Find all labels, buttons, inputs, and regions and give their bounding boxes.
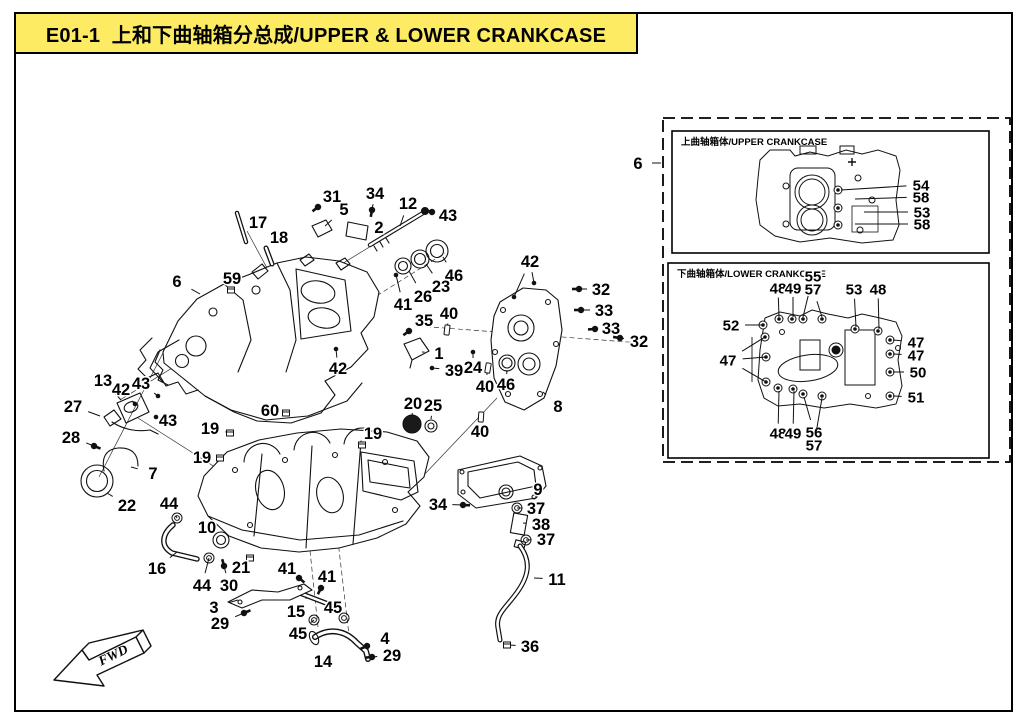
callout-33: 33 [588, 320, 620, 338]
inset-boxes [663, 118, 1010, 462]
oil-seal-art [81, 465, 113, 497]
page: E01-1 上和下曲轴箱分总成/UPPER & LOWER CRANKCASE [0, 0, 1027, 726]
callout-49: 49 [785, 391, 802, 442]
svg-text:44: 44 [160, 495, 179, 513]
callout-50: 50 [893, 364, 926, 381]
svg-text:30: 30 [220, 577, 238, 595]
callout-2: 2 [374, 219, 383, 237]
lower-inset-art [752, 310, 902, 408]
svg-text:58: 58 [914, 216, 931, 233]
svg-text:37: 37 [537, 531, 555, 549]
callout-52: 52 [723, 317, 763, 334]
svg-text:57: 57 [806, 437, 823, 454]
callout-28: 28 [62, 429, 101, 449]
svg-text:33: 33 [602, 320, 620, 338]
svg-text:9: 9 [533, 481, 542, 499]
callout-22: 22 [107, 493, 136, 515]
svg-text:5: 5 [339, 201, 348, 219]
callout-56: 56 [804, 397, 822, 441]
svg-text:42: 42 [329, 360, 347, 378]
bearing-rings-art [395, 240, 448, 274]
callout-24: 24 [464, 350, 483, 377]
callout-36: 36 [504, 638, 540, 656]
callout-25: 25 [424, 397, 442, 419]
svg-text:6: 6 [172, 273, 181, 291]
callout-26: 26 [409, 271, 432, 306]
svg-text:43: 43 [439, 207, 457, 225]
svg-text:48: 48 [870, 281, 887, 298]
svg-text:13: 13 [94, 372, 112, 390]
upper-inset-box [672, 131, 989, 253]
callout-17: 17 [249, 214, 267, 232]
svg-text:45: 45 [289, 625, 307, 643]
callout-21: 21 [232, 555, 254, 577]
callout-43: 43 [425, 207, 457, 225]
svg-text:43: 43 [132, 375, 150, 393]
callout-41: 41 [394, 273, 412, 314]
callout-35: 35 [403, 312, 433, 335]
svg-text:50: 50 [910, 364, 927, 381]
callout-32: 32 [572, 281, 610, 299]
svg-text:34: 34 [429, 496, 448, 514]
svg-text:43: 43 [159, 412, 177, 430]
svg-text:18: 18 [270, 229, 288, 247]
callout-8: 8 [543, 392, 563, 416]
svg-text:40: 40 [440, 305, 458, 323]
svg-text:8: 8 [553, 398, 562, 416]
svg-text:16: 16 [148, 560, 166, 578]
svg-text:19: 19 [193, 449, 211, 467]
svg-text:41: 41 [278, 560, 296, 578]
svg-text:53: 53 [846, 281, 863, 298]
callout-58: 58 [855, 216, 930, 233]
callout-6: 6 [633, 155, 661, 173]
svg-text:33: 33 [595, 302, 613, 320]
svg-text:27: 27 [64, 398, 82, 416]
callout-39: 39 [430, 362, 463, 380]
callout-40: 40 [471, 412, 489, 441]
callout-27: 27 [64, 398, 100, 416]
svg-text:28: 28 [62, 429, 80, 447]
svg-text:23: 23 [432, 278, 450, 296]
exploded-diagram: 上曲轴箱体/UPPER CRANKCASE 下曲轴箱体/LOWER CRANKC… [0, 0, 1027, 726]
callout-16: 16 [148, 552, 177, 578]
svg-text:51: 51 [908, 389, 925, 406]
svg-text:19: 19 [364, 425, 382, 443]
lower-inset-box [668, 263, 989, 458]
svg-text:34: 34 [366, 185, 385, 203]
svg-text:42: 42 [112, 381, 130, 399]
callout-9: 9 [533, 481, 542, 499]
upper-inset-callouts: 54585358 [841, 177, 930, 233]
svg-text:2: 2 [374, 219, 383, 237]
svg-text:25: 25 [424, 397, 442, 415]
svg-text:39: 39 [445, 362, 463, 380]
callout-37: 37 [521, 531, 555, 549]
svg-text:60: 60 [261, 402, 279, 420]
svg-text:17: 17 [249, 214, 267, 232]
svg-text:40: 40 [476, 378, 494, 396]
svg-text:32: 32 [630, 333, 648, 351]
svg-text:36: 36 [521, 638, 539, 656]
svg-text:41: 41 [318, 568, 336, 586]
oil-pipe-art [498, 546, 528, 640]
svg-text:46: 46 [497, 376, 515, 394]
svg-text:1: 1 [434, 345, 443, 363]
svg-text:47: 47 [720, 352, 737, 369]
svg-text:12: 12 [399, 195, 417, 213]
callout-31: 31 [312, 188, 341, 211]
callout-32: 32 [613, 333, 648, 351]
callout-40: 40 [440, 305, 458, 335]
svg-text:49: 49 [785, 425, 802, 442]
callout-14: 14 [314, 653, 333, 671]
inset-dashed-box [663, 118, 1010, 462]
svg-text:14: 14 [314, 653, 333, 671]
svg-text:47: 47 [908, 347, 925, 364]
svg-text:21: 21 [232, 559, 250, 577]
svg-text:52: 52 [723, 317, 740, 334]
callout-29: 29 [365, 647, 401, 665]
svg-text:22: 22 [118, 497, 136, 515]
diagram-art [81, 208, 562, 660]
svg-text:57: 57 [805, 281, 822, 298]
breather-pipe-art [164, 525, 197, 559]
lower-inset-callouts: 52474849555753484747505148495657 [720, 268, 927, 454]
svg-text:7: 7 [148, 465, 157, 483]
fwd-arrow: FWD [54, 630, 151, 686]
svg-text:45: 45 [324, 599, 342, 617]
svg-text:20: 20 [404, 395, 422, 413]
callout-34: 34 [366, 185, 385, 217]
callout-48: 48 [870, 281, 887, 329]
svg-text:59: 59 [223, 270, 241, 288]
callout-20: 20 [404, 395, 422, 417]
callout-47: 47 [893, 347, 924, 364]
svg-text:29: 29 [211, 615, 229, 633]
svg-text:24: 24 [464, 359, 483, 377]
upper-inset-art [756, 146, 900, 243]
callout-6: 6 [172, 273, 200, 294]
svg-text:35: 35 [415, 312, 433, 330]
svg-text:10: 10 [198, 519, 216, 537]
lower-inset-label: 下曲轴箱体/LOWER CRANKCASE [677, 268, 826, 280]
callout-53: 53 [846, 281, 863, 327]
callout-7: 7 [131, 465, 158, 483]
callout-19: 19 [201, 420, 234, 438]
svg-text:19: 19 [201, 420, 219, 438]
svg-text:26: 26 [414, 288, 432, 306]
svg-text:11: 11 [548, 571, 565, 589]
callout-33: 33 [574, 302, 613, 320]
svg-text:29: 29 [383, 647, 401, 665]
svg-text:15: 15 [287, 603, 305, 621]
svg-text:44: 44 [193, 577, 212, 595]
callout-49: 49 [785, 280, 802, 317]
callout-15: 15 [287, 597, 307, 621]
svg-text:40: 40 [471, 423, 489, 441]
svg-text:6: 6 [633, 155, 642, 173]
callout-44: 44 [160, 495, 182, 523]
svg-text:42: 42 [521, 253, 539, 271]
callout-11: 11 [534, 571, 566, 589]
svg-text:4: 4 [380, 630, 390, 648]
callout-10: 10 [198, 519, 216, 537]
svg-text:49: 49 [785, 280, 802, 297]
callout-41: 41 [318, 568, 336, 594]
callout-18: 18 [270, 229, 288, 247]
svg-text:41: 41 [394, 296, 412, 314]
callout-43: 43 [154, 412, 177, 430]
lower-crankcase-art [198, 428, 429, 552]
svg-text:32: 32 [592, 281, 610, 299]
breather-assy-art [104, 393, 158, 434]
callout-41: 41 [278, 560, 305, 583]
